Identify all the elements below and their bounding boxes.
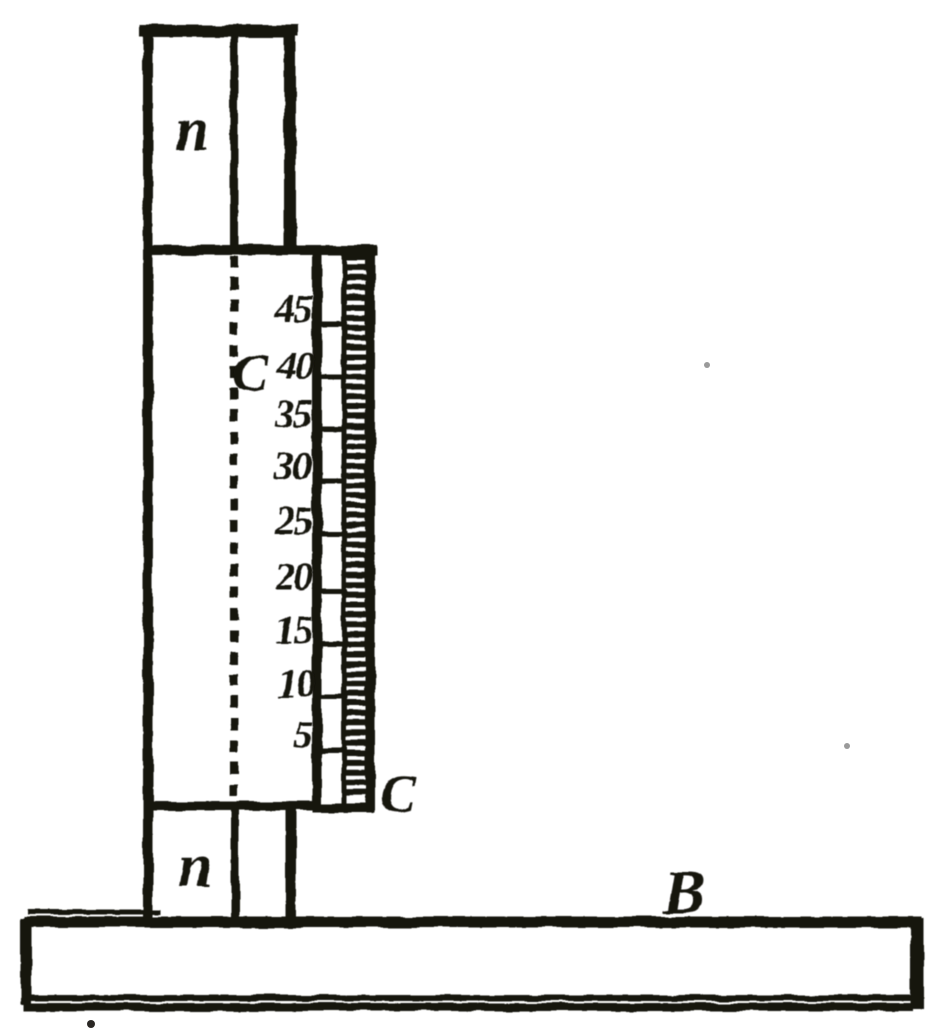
svg-text:B: B [662, 859, 704, 927]
svg-text:C: C [232, 343, 269, 403]
svg-text:15: 15 [275, 607, 312, 652]
svg-text:n: n [175, 96, 209, 164]
svg-text:5: 5 [293, 712, 312, 757]
svg-text:45: 45 [274, 286, 312, 331]
svg-text:C: C [380, 764, 417, 824]
svg-text:40: 40 [276, 343, 315, 388]
svg-text:n: n [178, 832, 212, 900]
svg-text:20: 20 [274, 554, 313, 599]
svg-text:25: 25 [274, 498, 312, 543]
svg-text:35: 35 [274, 391, 312, 436]
svg-text:30: 30 [273, 443, 312, 488]
svg-text:10: 10 [278, 661, 316, 706]
